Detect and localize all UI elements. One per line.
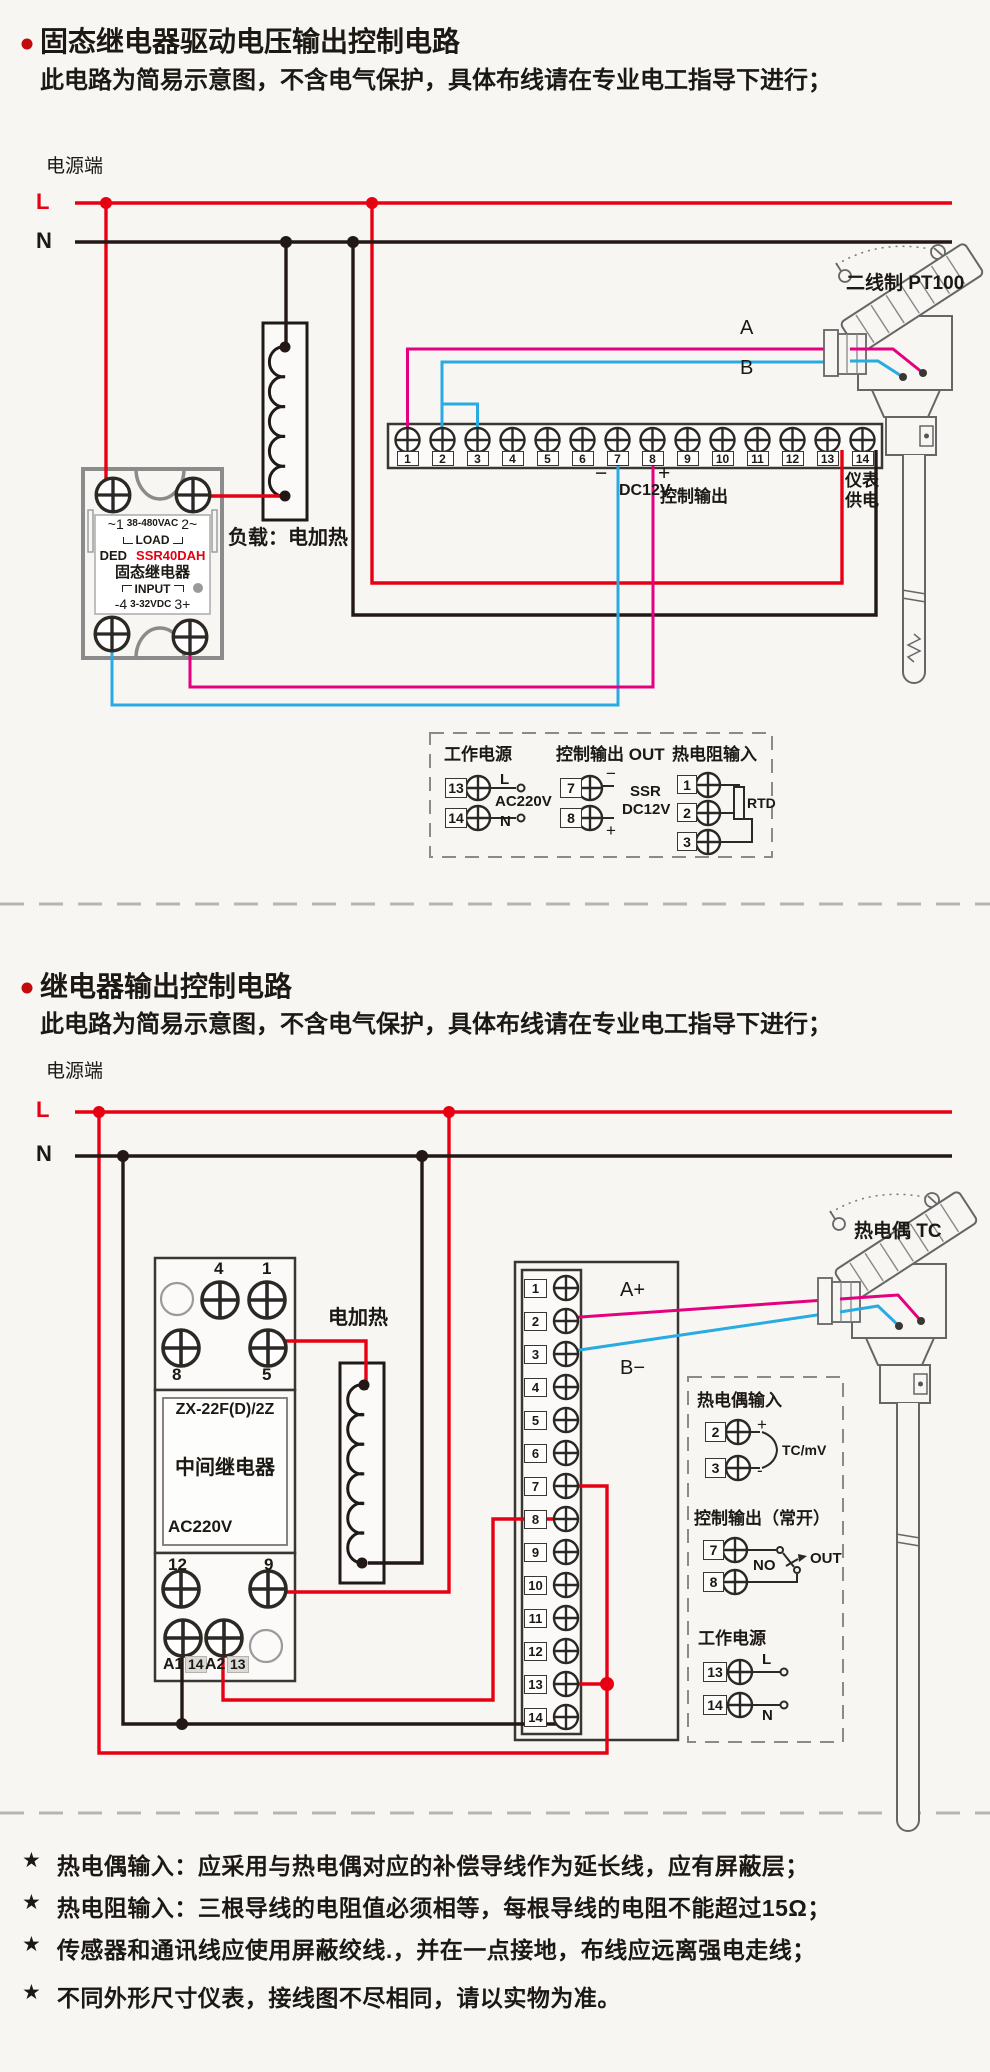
section2-subtitle: 此电路为简易示意图，不含电气保护，具体布线请在专业电工指导下进行； bbox=[40, 1012, 832, 1037]
terminal-number: 6 bbox=[524, 1444, 547, 1463]
terminal-number: 5 bbox=[537, 451, 559, 466]
ssr-name: 固态继电器 bbox=[115, 565, 190, 580]
terminal-number: 12 bbox=[782, 451, 804, 466]
screw-terminal-icon bbox=[746, 428, 770, 452]
legend2-no-label: NO bbox=[753, 1558, 776, 1574]
screw-terminal-icon bbox=[781, 428, 805, 452]
terminal-number: 13 bbox=[524, 1675, 547, 1694]
screw-terminal-icon bbox=[554, 1474, 578, 1498]
ssr-label-block: ~1 38-480VAC 2~ LOAD DED SSR40DAH 固态继电器 … bbox=[97, 517, 208, 612]
relay-terminal-a2-sub: 13 bbox=[227, 1656, 249, 1673]
note-row-1: ★ 热电偶输入：应采用与热电偶对应的补偿导线作为延长线，应有屏蔽层； bbox=[22, 1847, 809, 1881]
relay-terminal-9: 9 bbox=[264, 1556, 273, 1574]
star-icon: ★ bbox=[22, 1848, 41, 1873]
relay-terminal-12: 12 bbox=[168, 1556, 187, 1574]
screw-terminal-icon bbox=[571, 428, 595, 452]
terminal-number: 1 bbox=[397, 451, 419, 466]
meter-power-label-line1: 仪表 bbox=[845, 472, 879, 490]
relay-terminal-4: 4 bbox=[214, 1260, 223, 1278]
legend2-work-power-title: 工作电源 bbox=[698, 1630, 766, 1648]
terminal-number: 12 bbox=[524, 1642, 547, 1661]
dc-minus-label: − bbox=[595, 463, 607, 485]
relay-terminal-a1: A1 bbox=[163, 1657, 183, 1674]
legend2-control-out-title: 控制输出（常开） bbox=[694, 1510, 830, 1528]
pt100-sensor-label: 二线制 PT100 bbox=[846, 274, 964, 294]
star-icon: ★ bbox=[22, 1890, 41, 1915]
note-row-3: ★ 传感器和通讯线应使用屏蔽绞线.，并在一点接地，布线应远离强电走线； bbox=[22, 1931, 816, 1965]
legend1-control-out-title: 控制输出 OUT bbox=[556, 746, 665, 764]
star-icon: ★ bbox=[22, 1932, 41, 1957]
screw-terminal-icon bbox=[554, 1408, 578, 1432]
relay-terminal-8: 8 bbox=[172, 1366, 181, 1384]
legend1-terminal-3: 3 bbox=[677, 832, 697, 851]
load-heater-label: 负载：电加热 bbox=[228, 528, 348, 549]
ssr-terminal-4: -4 bbox=[115, 597, 127, 612]
screw-terminal-icon bbox=[396, 428, 420, 452]
legend1-ssr-label: SSR bbox=[630, 784, 661, 800]
wire-b-minus-label: B− bbox=[620, 1358, 645, 1379]
screw-terminal-icon bbox=[641, 428, 665, 452]
screw-terminal-icon bbox=[554, 1540, 578, 1564]
legend1-dc12v-label: DC12V bbox=[622, 802, 670, 818]
ssr-load-label: LOAD bbox=[136, 534, 170, 546]
section1-title: 固态继电器驱动电压输出控制电路 bbox=[40, 27, 460, 56]
terminal-number: 13 bbox=[817, 451, 839, 466]
terminal-number: 3 bbox=[467, 451, 489, 466]
screw-terminal-icon bbox=[554, 1441, 578, 1465]
note-row-4: ★ 不同外形尺寸仪表，接线图不尽相同，请以实物为准。 bbox=[22, 1979, 621, 2013]
screw-terminal-icon bbox=[554, 1606, 578, 1630]
note-text: 热电偶输入：应采用与热电偶对应的补偿导线作为延长线，应有屏蔽层； bbox=[57, 1847, 809, 1881]
legend2-terminal-14: 14 bbox=[703, 1695, 727, 1715]
section2-line-n-label: N bbox=[36, 1142, 52, 1165]
section1-power-label: 电源端 bbox=[46, 157, 103, 177]
section1-subtitle: 此电路为简易示意图，不含电气保护，具体布线请在专业电工指导下进行； bbox=[40, 68, 832, 93]
terminal-number: 6 bbox=[572, 451, 594, 466]
ssr-input-label: INPUT bbox=[135, 583, 171, 595]
screw-terminal-icon bbox=[554, 1342, 578, 1366]
legend1-terminal-13: 13 bbox=[445, 778, 467, 798]
screw-terminal-icon bbox=[466, 428, 490, 452]
ssr-terminal-2: 2~ bbox=[181, 517, 197, 532]
legend1-rtd-label: RTD bbox=[747, 796, 776, 811]
screw-terminal-icon bbox=[554, 1639, 578, 1663]
screw-terminal-icon bbox=[554, 1309, 578, 1333]
section2-power-label: 电源端 bbox=[46, 1062, 103, 1082]
terminal-number: 2 bbox=[524, 1312, 547, 1331]
relay-model: ZX-22F(D)/2Z bbox=[163, 1402, 287, 1419]
screw-terminal-icon bbox=[606, 428, 630, 452]
terminal-number: 9 bbox=[677, 451, 699, 466]
legend2-terminal-2: 2 bbox=[705, 1422, 726, 1442]
terminal-number: 2 bbox=[432, 451, 454, 466]
note-text: 不同外形尺寸仪表，接线图不尽相同，请以实物为准。 bbox=[57, 1979, 621, 2013]
ssr-model: SSR40DAH bbox=[136, 549, 205, 562]
screw-terminal-icon bbox=[676, 428, 700, 452]
section2-line-l-label: L bbox=[36, 1098, 49, 1121]
terminal-number: 1 bbox=[524, 1279, 547, 1298]
terminal-number: 4 bbox=[502, 451, 524, 466]
legend2-tc-plus: + bbox=[757, 1416, 767, 1434]
legend2-l-label: L bbox=[762, 1652, 771, 1668]
legend2-terminal-3: 3 bbox=[705, 1458, 726, 1478]
legend2-tc-minus: - bbox=[757, 1462, 763, 1480]
legend2-terminal-7: 7 bbox=[703, 1540, 724, 1560]
legend1-terminal-7: 7 bbox=[560, 778, 582, 798]
legend1-rtd-input-title: 热电阻输入 bbox=[672, 746, 757, 764]
ssr-terminal-3: 3+ bbox=[174, 597, 190, 612]
section1-line-n-label: N bbox=[36, 229, 52, 252]
ssr-vdc-rating: 3-32VDC bbox=[130, 600, 171, 610]
wire-a-plus-label: A+ bbox=[620, 1280, 645, 1301]
screw-terminal-icon bbox=[554, 1705, 578, 1729]
legend2-out-label: OUT bbox=[810, 1551, 842, 1567]
note-row-2: ★ 热电阻输入：三根导线的电阻值必须相等，每根导线的电阻不能超过15Ω； bbox=[22, 1889, 831, 1923]
load-bracket-left bbox=[123, 537, 133, 544]
screw-terminal-icon bbox=[816, 428, 840, 452]
legend1-terminal-14: 14 bbox=[445, 808, 467, 828]
wire-b-label: B bbox=[740, 358, 753, 379]
ssr-vac-rating: 38-480VAC bbox=[127, 519, 179, 529]
ssr-terminal-1: ~1 bbox=[108, 517, 124, 532]
legend2-terminal-13: 13 bbox=[703, 1662, 727, 1682]
relay-terminal-a1-sub: 14 bbox=[185, 1656, 207, 1673]
wire-a-label: A bbox=[740, 318, 753, 339]
legend1-l-label: L bbox=[500, 772, 509, 788]
section1-line-l-label: L bbox=[36, 190, 49, 213]
legend1-terminal-1: 1 bbox=[677, 775, 697, 794]
relay-terminal-5: 5 bbox=[262, 1366, 271, 1384]
screw-terminal-icon bbox=[554, 1672, 578, 1696]
terminal-number: 11 bbox=[524, 1609, 547, 1628]
terminal-number: 3 bbox=[524, 1345, 547, 1364]
legend2-terminal-8: 8 bbox=[703, 1572, 724, 1592]
screw-terminal-icon bbox=[431, 428, 455, 452]
meter-power-label-line2: 供电 bbox=[845, 492, 879, 510]
relay-terminal-1: 1 bbox=[262, 1260, 271, 1278]
terminal-number: 7 bbox=[524, 1477, 547, 1496]
legend2-tcmv-label: TC/mV bbox=[782, 1443, 826, 1458]
relay-terminal-a2: A2 bbox=[205, 1657, 225, 1674]
relay-voltage: AC220V bbox=[168, 1518, 232, 1536]
screw-terminal-icon bbox=[501, 428, 525, 452]
terminal-number: 10 bbox=[712, 451, 734, 466]
terminal-number: 11 bbox=[747, 451, 769, 466]
terminal-number: 7 bbox=[607, 451, 629, 466]
input-bracket-right bbox=[174, 585, 184, 592]
input-bracket-left bbox=[122, 585, 132, 592]
legend1-out-plus: + bbox=[606, 822, 616, 840]
terminal-number: 9 bbox=[524, 1543, 547, 1562]
legend1-work-power-title: 工作电源 bbox=[444, 746, 512, 764]
wiring-diagram-page: 固态继电器驱动电压输出控制电路 此电路为简易示意图，不含电气保护，具体布线请在专… bbox=[0, 0, 990, 2072]
screw-terminal-icon bbox=[554, 1573, 578, 1597]
star-icon: ★ bbox=[22, 1980, 41, 2005]
legend1-ac220v-label: AC220V bbox=[495, 794, 552, 810]
note-text: 热电阻输入：三根导线的电阻值必须相等，每根导线的电阻不能超过15Ω； bbox=[57, 1889, 831, 1923]
legend1-terminal-2: 2 bbox=[677, 803, 697, 822]
terminal-number: 8 bbox=[524, 1510, 547, 1529]
ssr-brand: DED bbox=[100, 549, 127, 562]
tc-sensor-label: 热电偶 TC bbox=[854, 1222, 942, 1242]
screw-terminal-icon bbox=[711, 428, 735, 452]
load-bracket-right bbox=[173, 537, 183, 544]
note-text: 传感器和通讯线应使用屏蔽绞线.，并在一点接地，布线应远离强电走线； bbox=[57, 1931, 816, 1965]
screw-terminal-icon bbox=[536, 428, 560, 452]
terminal-number: 5 bbox=[524, 1411, 547, 1430]
legend2-n-label: N bbox=[762, 1708, 773, 1724]
terminal-number: 14 bbox=[524, 1708, 547, 1727]
terminal-number: 4 bbox=[524, 1378, 547, 1397]
dc-plus-label: + bbox=[658, 463, 670, 485]
terminal-number: 8 bbox=[642, 451, 664, 466]
legend1-terminal-8: 8 bbox=[560, 808, 582, 828]
screw-terminal-icon bbox=[554, 1507, 578, 1531]
legend1-n-label: N bbox=[500, 814, 511, 830]
section2-title: 继电器输出控制电路 bbox=[40, 972, 292, 1001]
legend2-tc-input-title: 热电偶输入 bbox=[697, 1392, 782, 1410]
screw-terminal-icon bbox=[554, 1276, 578, 1300]
control-output-label: 控制输出 bbox=[660, 488, 728, 506]
relay-name: 中间继电器 bbox=[163, 1458, 287, 1479]
screw-terminal-icon bbox=[554, 1375, 578, 1399]
legend1-out-minus: − bbox=[606, 765, 616, 783]
terminal-number: 10 bbox=[524, 1576, 547, 1595]
terminal-number: 14 bbox=[852, 451, 874, 466]
screw-terminal-icon bbox=[851, 428, 875, 452]
heater2-label: 电加热 bbox=[328, 1308, 388, 1329]
